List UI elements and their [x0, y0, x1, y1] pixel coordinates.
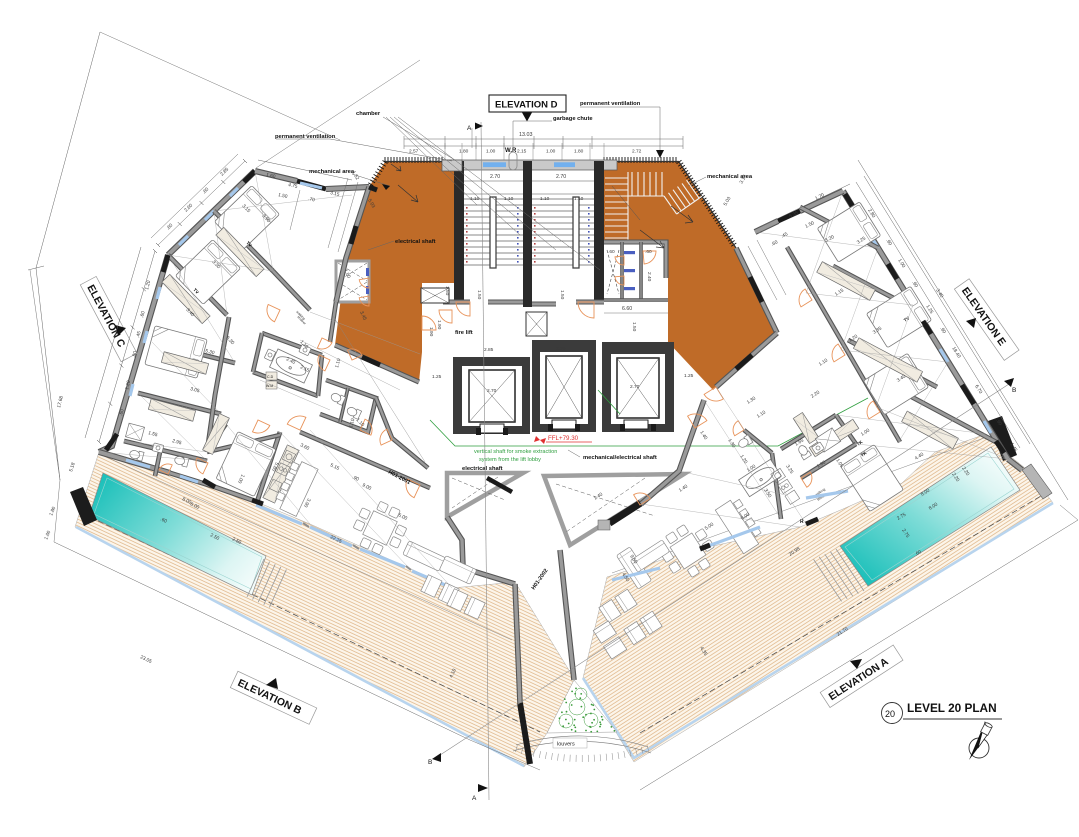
svg-text:20: 20 — [885, 709, 895, 719]
svg-text:electrical shaft: electrical shaft — [395, 239, 436, 245]
svg-text:A: A — [472, 795, 477, 802]
svg-text:2.40: 2.40 — [646, 272, 652, 282]
svg-text:chamber: chamber — [356, 111, 381, 117]
svg-text:1.50: 1.50 — [559, 290, 565, 300]
svg-text:system from the lift lobby: system from the lift lobby — [479, 457, 541, 463]
svg-text:1.50: 1.50 — [631, 322, 637, 332]
svg-text:2.15: 2.15 — [517, 149, 527, 155]
svg-text:2.70: 2.70 — [490, 174, 500, 180]
svg-text:1.90: 1.90 — [436, 320, 442, 330]
svg-text:mechanical area: mechanical area — [309, 169, 355, 175]
svg-text:6.60: 6.60 — [622, 306, 632, 312]
svg-text:1.90: 1.90 — [428, 327, 434, 337]
svg-text:2.70: 2.70 — [556, 346, 566, 352]
svg-text:LEVEL 20 PLAN: LEVEL 20 PLAN — [907, 701, 997, 715]
svg-text:B: B — [428, 759, 432, 766]
svg-text:13.03: 13.03 — [519, 132, 533, 138]
svg-text:1.25: 1.25 — [432, 374, 442, 380]
svg-text:1.80: 1.80 — [574, 149, 584, 155]
svg-text:1.00: 1.00 — [546, 149, 556, 155]
svg-text:vertical shaft for smoke extra: vertical shaft for smoke extraction — [474, 449, 557, 455]
svg-text:1.80: 1.80 — [459, 149, 469, 155]
svg-text:A: A — [467, 125, 472, 132]
svg-text:permanent ventilation: permanent ventilation — [580, 101, 641, 107]
svg-text:B: B — [1012, 387, 1016, 394]
svg-text:1.50: 1.50 — [476, 290, 482, 300]
svg-text:louvers: louvers — [557, 742, 575, 748]
svg-text:W.R: W.R — [505, 148, 517, 154]
svg-text:fire lift: fire lift — [455, 330, 473, 336]
svg-text:2.70: 2.70 — [487, 388, 497, 394]
svg-text:1.00: 1.00 — [486, 149, 496, 155]
svg-text:2.72: 2.72 — [632, 149, 642, 155]
svg-text:.60: .60 — [645, 249, 652, 255]
svg-text:.60: .60 — [608, 249, 615, 255]
svg-text:1.10: 1.10 — [574, 196, 584, 202]
svg-text:garbage chute: garbage chute — [553, 116, 593, 122]
svg-text:C.D: C.D — [267, 375, 274, 379]
svg-text:1.25: 1.25 — [684, 373, 694, 379]
svg-text:2.85: 2.85 — [484, 347, 494, 353]
svg-text:1.10: 1.10 — [540, 196, 550, 202]
svg-text:2.70: 2.70 — [630, 384, 640, 390]
svg-text:ELEVATION D: ELEVATION D — [495, 100, 558, 111]
svg-text:2.70: 2.70 — [556, 174, 566, 180]
svg-text:1.50: 1.50 — [444, 286, 450, 296]
svg-text:mechanical/electrical shaft: mechanical/electrical shaft — [583, 455, 657, 461]
svg-text:FFL+79.30: FFL+79.30 — [548, 435, 579, 442]
svg-text:W.M: W.M — [266, 384, 273, 388]
